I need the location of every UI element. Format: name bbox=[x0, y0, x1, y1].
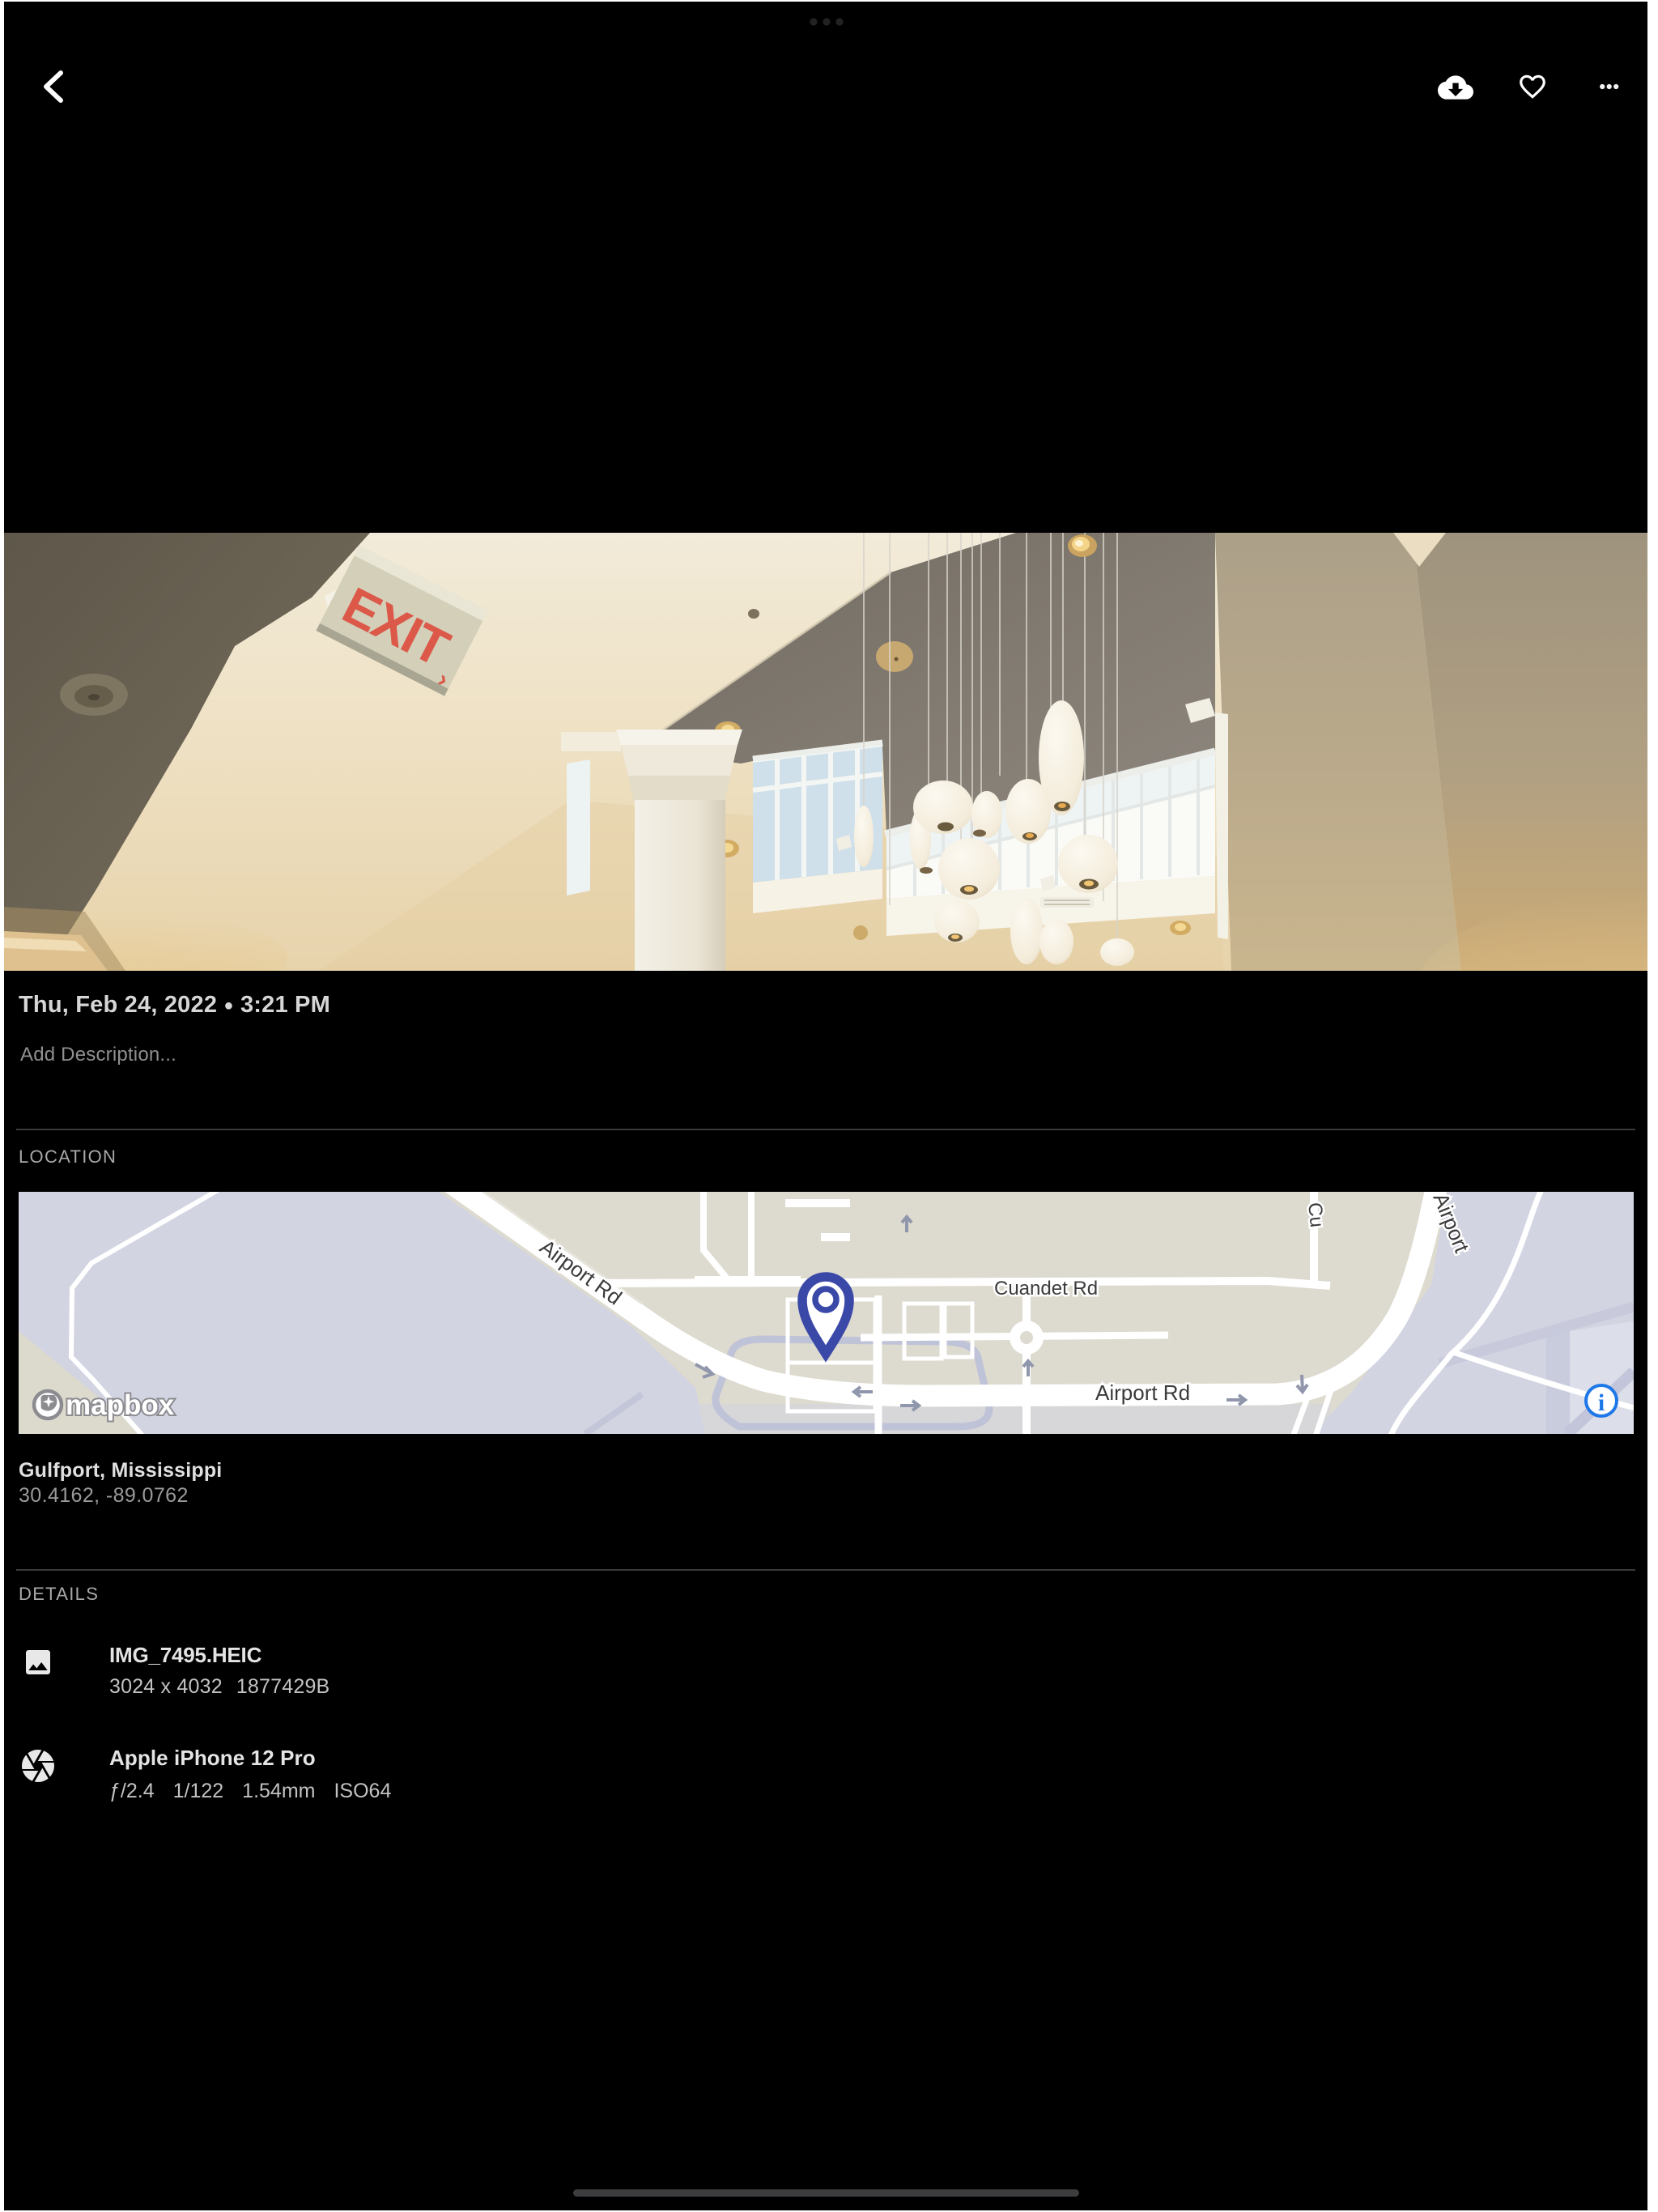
svg-text:Cuandet Rd: Cuandet Rd bbox=[994, 1278, 1098, 1300]
svg-text:mapbox: mapbox bbox=[66, 1389, 175, 1421]
svg-text:i: i bbox=[1598, 1389, 1605, 1416]
svg-text:Cu: Cu bbox=[1303, 1202, 1328, 1228]
svg-text:Airport Rd: Airport Rd bbox=[1095, 1380, 1190, 1405]
